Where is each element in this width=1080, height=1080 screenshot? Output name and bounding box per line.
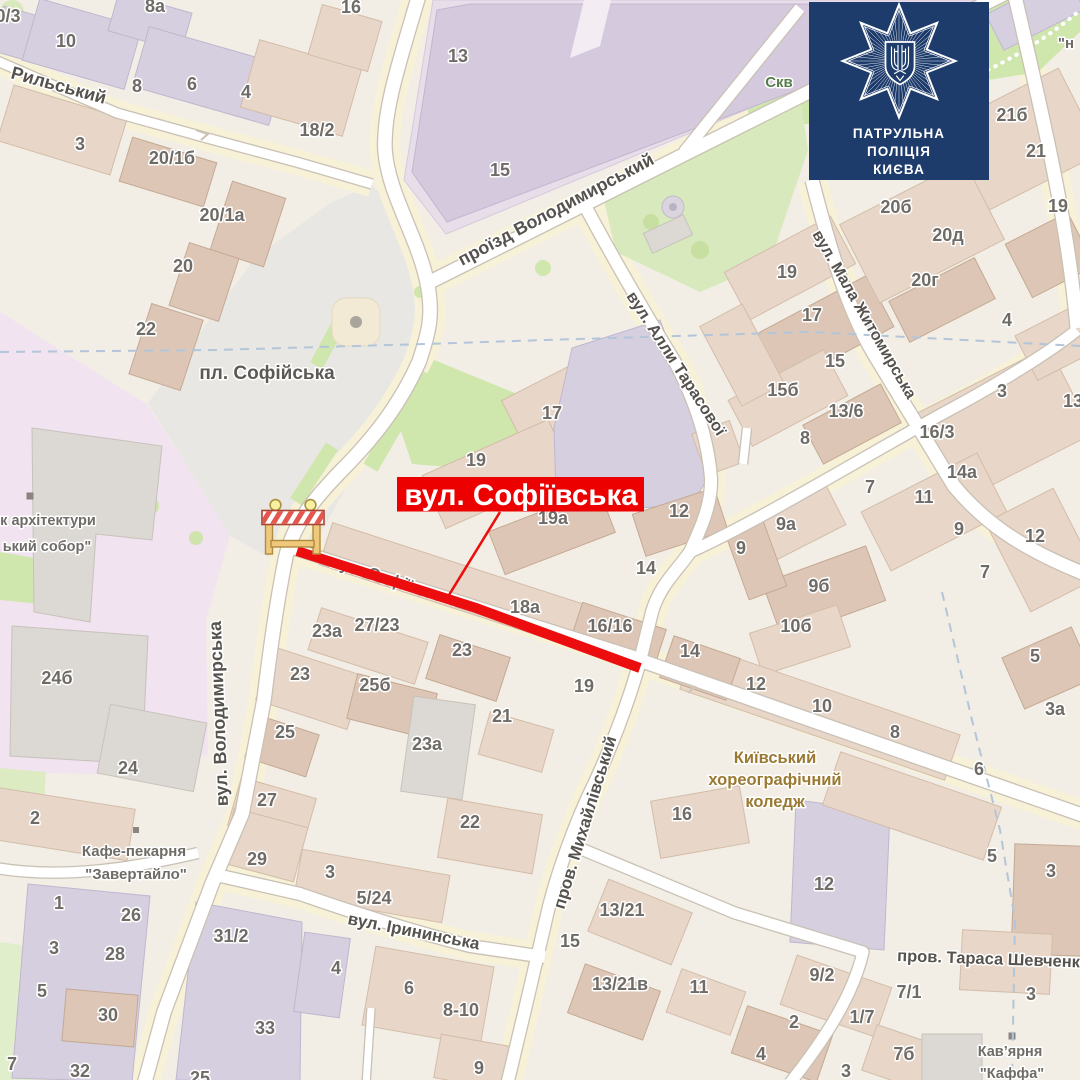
svg-text:19: 19	[777, 262, 797, 282]
svg-text:14: 14	[636, 558, 656, 578]
svg-text:9а: 9а	[776, 514, 797, 534]
svg-text:27: 27	[257, 790, 277, 810]
svg-text:7: 7	[7, 1054, 17, 1074]
svg-text:15б: 15б	[767, 380, 798, 400]
svg-text:14: 14	[680, 641, 700, 661]
svg-text:10: 10	[812, 696, 832, 716]
svg-text:4: 4	[241, 82, 251, 102]
svg-text:8-10: 8-10	[443, 1000, 479, 1020]
svg-text:3: 3	[75, 134, 85, 154]
svg-text:Скв: Скв	[765, 74, 793, 91]
svg-text:18а: 18а	[510, 597, 541, 617]
svg-text:23: 23	[452, 640, 472, 660]
svg-text:2: 2	[30, 808, 40, 828]
svg-text:10б: 10б	[780, 616, 811, 636]
svg-text:23а: 23а	[312, 621, 343, 641]
svg-text:6: 6	[974, 759, 984, 779]
svg-text:20: 20	[173, 256, 193, 276]
svg-text:30: 30	[98, 1005, 118, 1025]
svg-text:"н: "н	[1058, 35, 1074, 52]
svg-text:12: 12	[814, 874, 834, 894]
svg-text:1: 1	[54, 893, 64, 913]
svg-text:24б: 24б	[41, 668, 72, 688]
svg-text:12: 12	[669, 501, 689, 521]
svg-text:КИЄВА: КИЄВА	[873, 162, 925, 177]
svg-text:24: 24	[118, 758, 138, 778]
svg-text:12: 12	[746, 674, 766, 694]
svg-text:Кав’ярня: Кав’ярня	[978, 1044, 1043, 1060]
svg-text:14а: 14а	[947, 462, 978, 482]
svg-text:22: 22	[460, 812, 480, 832]
svg-text:5/24: 5/24	[356, 888, 391, 908]
svg-text:3: 3	[1046, 861, 1056, 881]
svg-text:8а: 8а	[145, 0, 166, 16]
svg-text:32: 32	[70, 1061, 90, 1080]
svg-text:ький собор": ький собор"	[3, 539, 92, 555]
svg-text:20/1а: 20/1а	[199, 205, 245, 225]
svg-text:21б: 21б	[996, 105, 1027, 125]
svg-text:18/2: 18/2	[299, 120, 334, 140]
svg-text:9: 9	[736, 538, 746, 558]
svg-text:31/2: 31/2	[213, 926, 248, 946]
svg-text:23а: 23а	[412, 734, 443, 754]
svg-text:15: 15	[560, 931, 580, 951]
svg-text:33: 33	[255, 1018, 275, 1038]
svg-text:Кафе-пекарня: Кафе-пекарня	[82, 843, 186, 860]
svg-text:21: 21	[492, 706, 512, 726]
svg-text:20б: 20б	[880, 197, 911, 217]
svg-text:11: 11	[914, 487, 933, 507]
svg-text:12: 12	[1025, 526, 1045, 546]
svg-text:7/1: 7/1	[896, 982, 921, 1002]
svg-text:0/3: 0/3	[0, 6, 21, 26]
svg-text:5: 5	[987, 846, 997, 866]
svg-text:29: 29	[247, 849, 267, 869]
svg-text:16: 16	[341, 0, 361, 17]
svg-text:7: 7	[980, 562, 990, 582]
svg-text:8: 8	[800, 428, 810, 448]
svg-text:хореографічний: хореографічний	[708, 771, 841, 789]
svg-text:4: 4	[1002, 310, 1012, 330]
svg-text:Київський: Київський	[734, 749, 816, 767]
svg-text:3: 3	[997, 381, 1007, 401]
svg-text:"Каффа": "Каффа"	[980, 1066, 1044, 1080]
svg-text:10: 10	[56, 31, 76, 51]
svg-text:19: 19	[1048, 196, 1068, 216]
svg-text:17: 17	[802, 305, 822, 325]
svg-text:6: 6	[187, 74, 197, 94]
svg-text:9: 9	[954, 519, 964, 539]
svg-text:3: 3	[325, 862, 335, 882]
svg-text:4: 4	[756, 1044, 766, 1064]
svg-text:19: 19	[466, 450, 486, 470]
svg-text:9/2: 9/2	[809, 965, 834, 985]
svg-text:28: 28	[105, 944, 125, 964]
svg-text:25: 25	[275, 722, 295, 742]
svg-text:23: 23	[290, 664, 310, 684]
svg-text:20д: 20д	[932, 225, 964, 245]
svg-text:3: 3	[49, 938, 59, 958]
svg-text:16/3: 16/3	[919, 422, 954, 442]
svg-text:19: 19	[574, 676, 594, 696]
svg-text:"Завертайло": "Завертайло"	[85, 866, 187, 883]
svg-text:13: 13	[1063, 391, 1080, 411]
svg-text:1/7: 1/7	[849, 1007, 874, 1027]
svg-text:пл. Софійська: пл. Софійська	[199, 363, 335, 384]
svg-text:7: 7	[865, 477, 875, 497]
svg-text:коледж: коледж	[745, 793, 805, 811]
svg-text:15: 15	[490, 160, 510, 180]
svg-text:15: 15	[825, 351, 845, 371]
svg-text:9б: 9б	[808, 576, 829, 596]
svg-text:20г: 20г	[911, 270, 939, 290]
svg-text:13/21в: 13/21в	[592, 974, 648, 994]
svg-text:25: 25	[190, 1068, 210, 1080]
svg-text:вул. Софіївська: вул. Софіївська	[404, 479, 638, 512]
svg-text:6: 6	[404, 978, 414, 998]
svg-text:13/21: 13/21	[599, 900, 644, 920]
svg-text:ПОЛІЦІЯ: ПОЛІЦІЯ	[867, 144, 931, 159]
svg-text:к архітектури: к архітектури	[0, 513, 96, 529]
svg-text:16/16: 16/16	[587, 616, 632, 636]
svg-text:20/1б: 20/1б	[149, 148, 195, 168]
svg-text:3а: 3а	[1045, 699, 1066, 719]
svg-text:4: 4	[331, 958, 341, 978]
svg-text:8: 8	[132, 76, 142, 96]
svg-text:2: 2	[789, 1012, 799, 1032]
svg-text:26: 26	[121, 905, 141, 925]
svg-text:27/23: 27/23	[354, 615, 399, 635]
svg-text:ПАТРУЛЬНА: ПАТРУЛЬНА	[853, 126, 945, 141]
svg-text:21: 21	[1026, 141, 1046, 161]
svg-text:13/6: 13/6	[828, 401, 863, 421]
svg-text:9: 9	[474, 1058, 484, 1078]
svg-text:7б: 7б	[893, 1044, 914, 1064]
svg-text:13: 13	[448, 46, 468, 66]
svg-text:3: 3	[1026, 984, 1036, 1004]
svg-text:25б: 25б	[359, 675, 390, 695]
svg-text:5: 5	[1030, 646, 1040, 666]
svg-text:22: 22	[136, 319, 156, 339]
svg-text:8: 8	[890, 722, 900, 742]
svg-text:16: 16	[672, 804, 692, 824]
svg-text:11: 11	[689, 977, 708, 997]
svg-text:17: 17	[542, 403, 562, 423]
svg-text:5: 5	[37, 981, 47, 1001]
svg-text:3: 3	[841, 1061, 851, 1080]
